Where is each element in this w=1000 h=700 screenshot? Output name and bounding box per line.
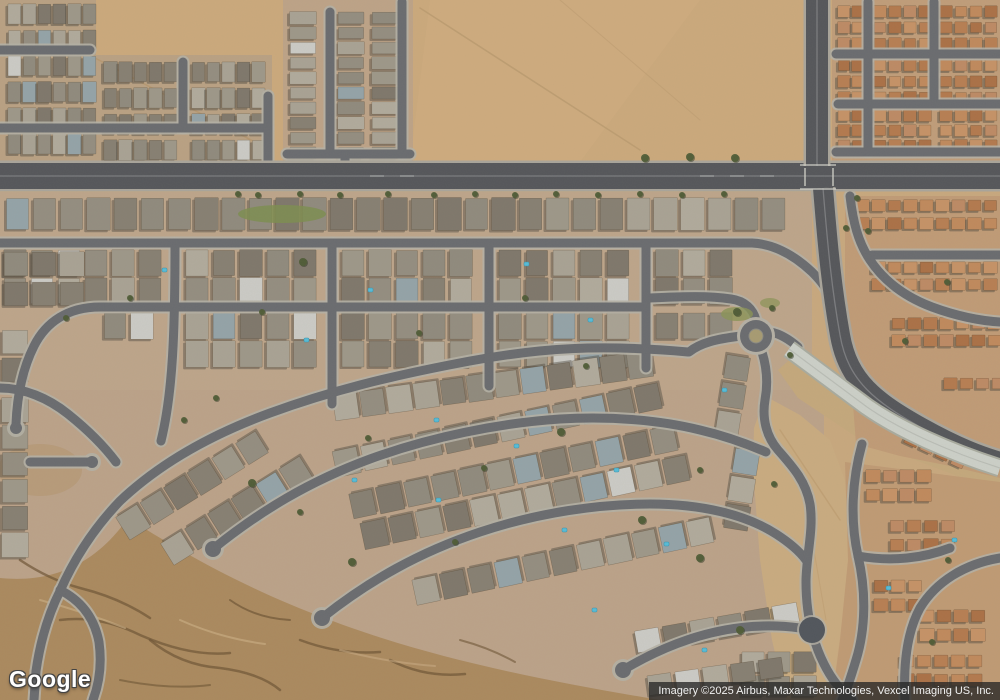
google-logo[interactable]: Google	[9, 666, 91, 693]
imagery-attribution: Imagery ©2025 Airbus, Maxar Technologies…	[649, 682, 1000, 700]
map-viewport[interactable]: Google Imagery ©2025 Airbus, Maxar Techn…	[0, 0, 1000, 700]
noise-overlay	[0, 0, 1000, 700]
satellite-imagery[interactable]	[0, 0, 1000, 700]
